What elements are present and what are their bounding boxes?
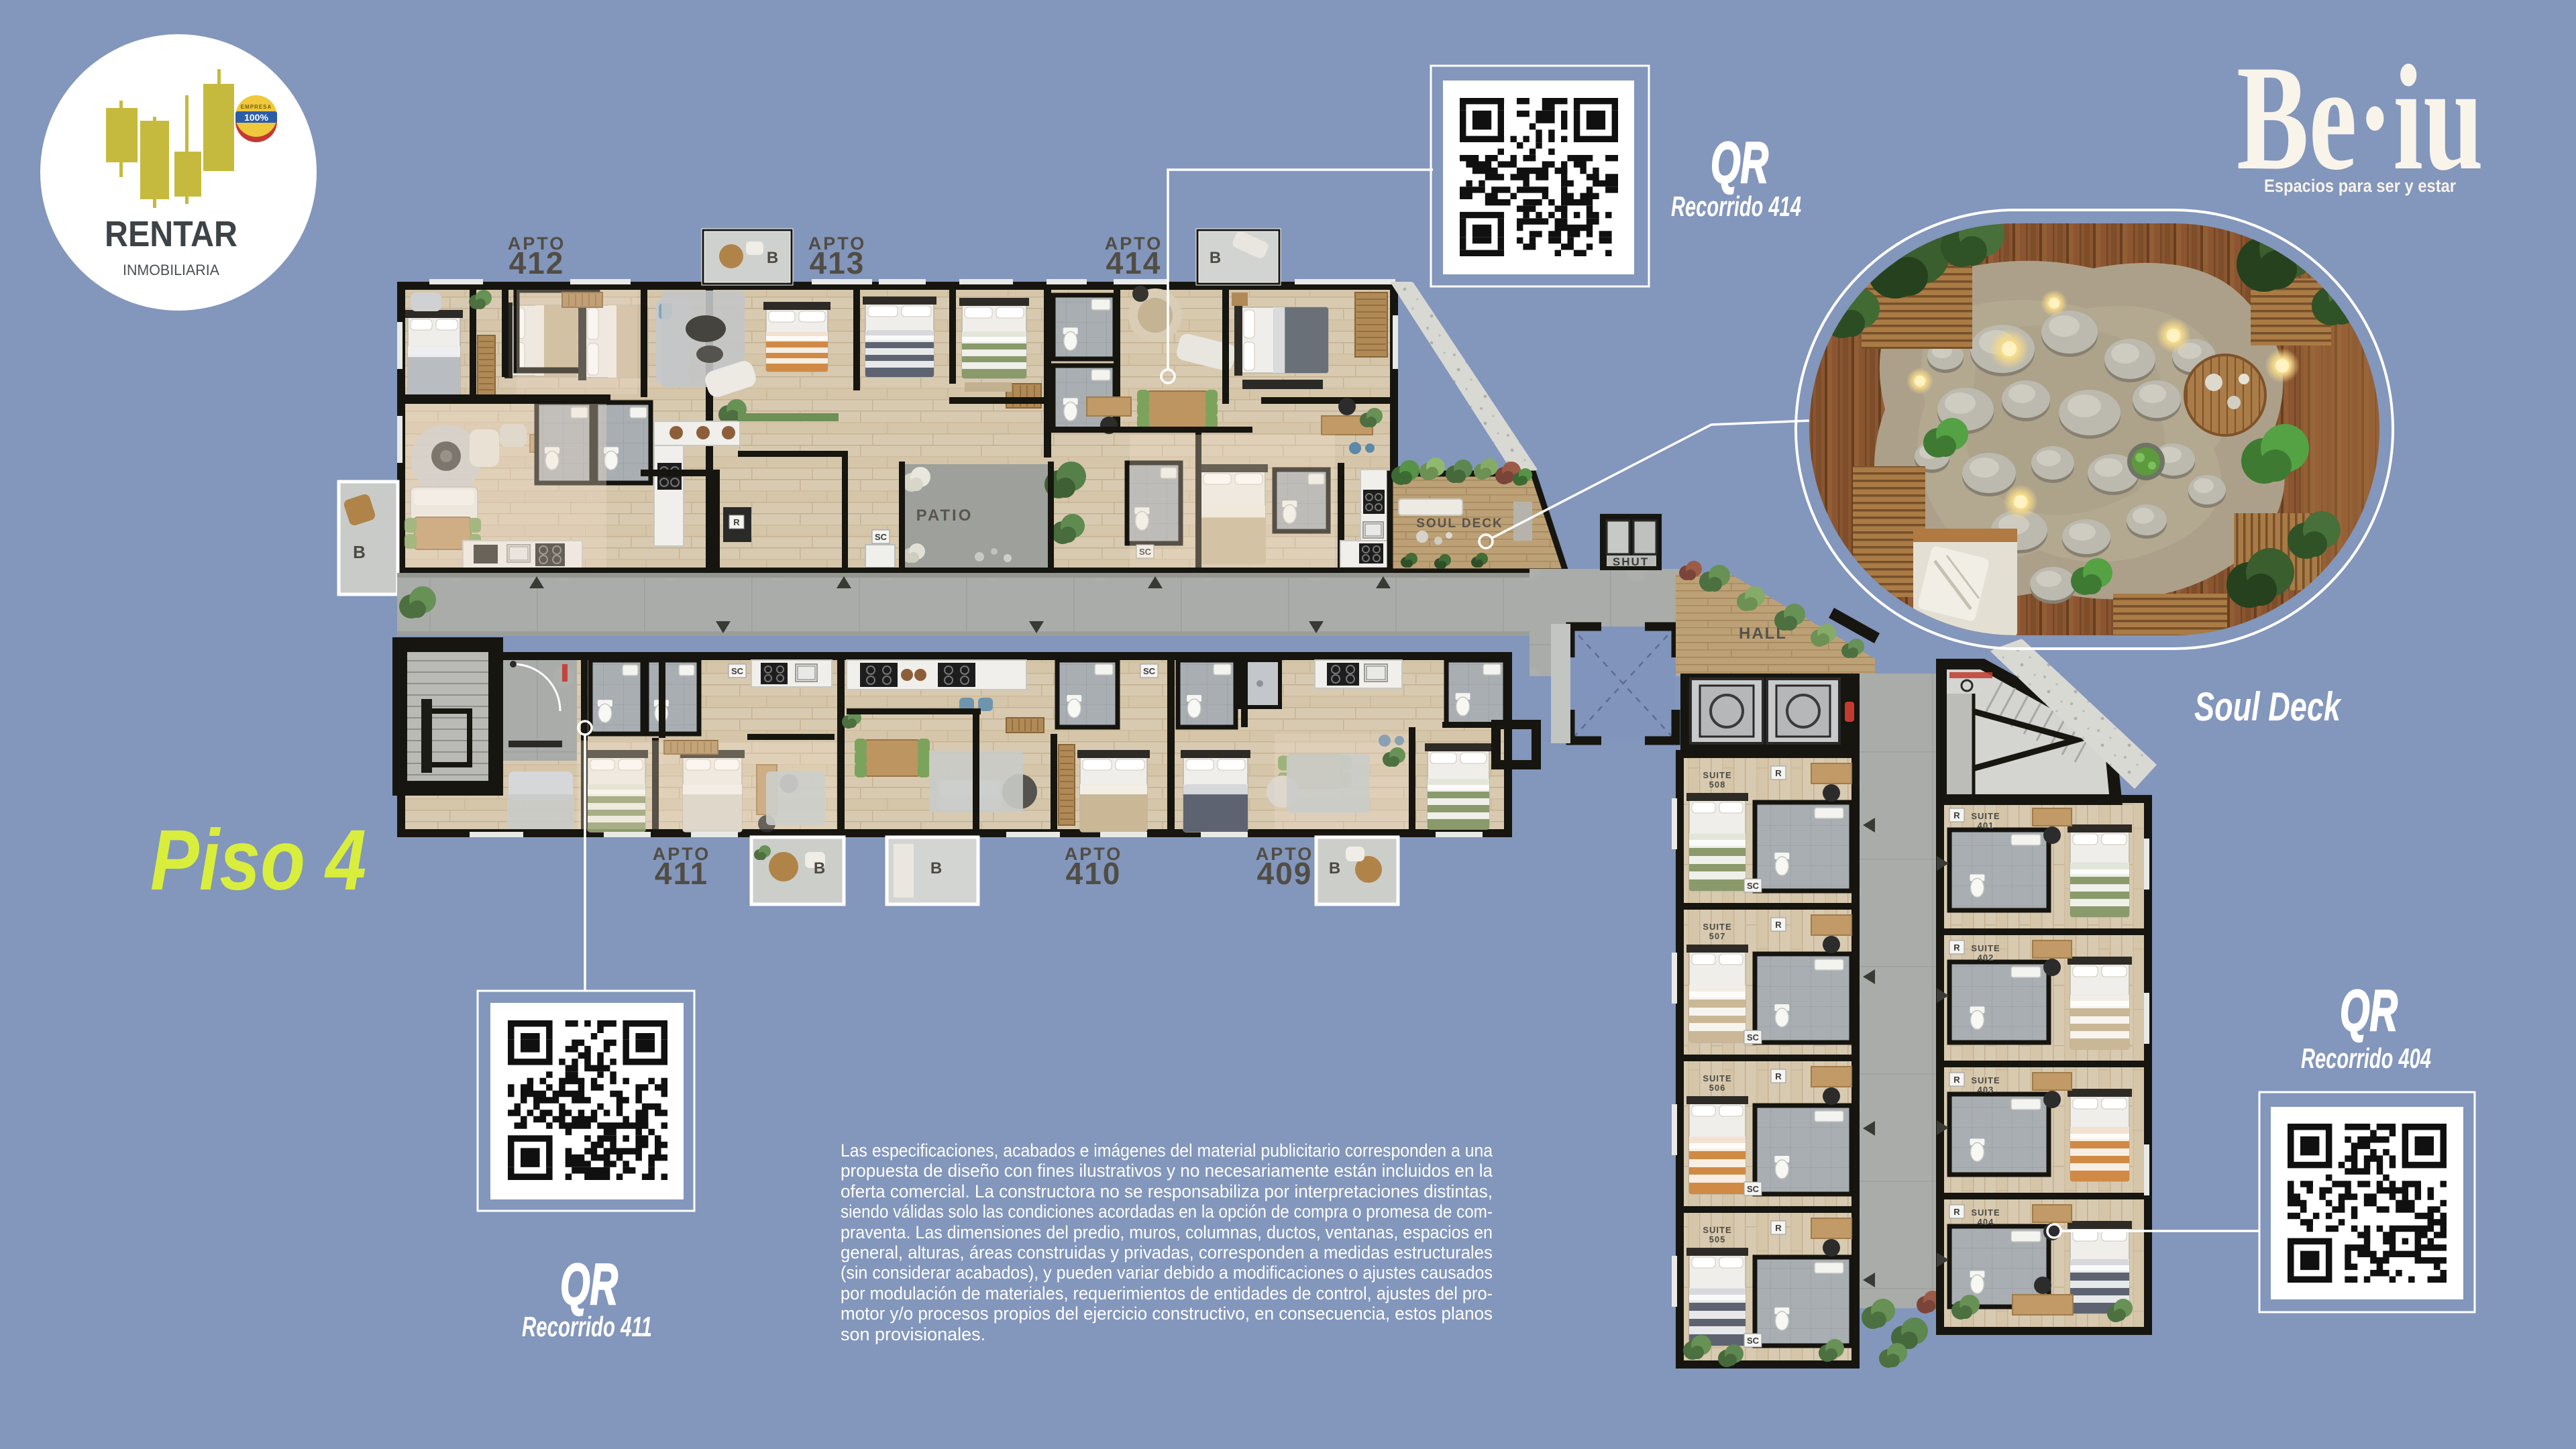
svg-text:505: 505 [1709, 1234, 1726, 1244]
svg-text:507: 507 [1709, 931, 1726, 941]
svg-text:SUITE: SUITE [1703, 770, 1731, 780]
svg-text:SUITE: SUITE [1971, 1075, 2000, 1085]
svg-text:R: R [733, 517, 740, 527]
svg-text:Recorrido 411: Recorrido 411 [522, 1311, 652, 1342]
svg-text:B: B [767, 249, 779, 267]
svg-text:R: R [1953, 1075, 1960, 1085]
svg-text:412: 412 [509, 246, 565, 280]
svg-text:RENTAR: RENTAR [105, 214, 237, 254]
svg-text:SC: SC [731, 666, 744, 676]
svg-text:B: B [353, 542, 366, 562]
svg-text:Espacios para ser y estar: Espacios para ser y estar [2264, 176, 2456, 196]
svg-text:508: 508 [1709, 780, 1726, 790]
svg-text:SUITE: SUITE [1703, 1073, 1731, 1083]
svg-text:QR: QR [560, 1252, 618, 1317]
svg-text:R: R [1775, 1223, 1782, 1233]
svg-text:414: 414 [1106, 246, 1162, 280]
svg-text:Soul Deck: Soul Deck [2194, 684, 2342, 729]
svg-text:SOUL DECK: SOUL DECK [1416, 517, 1503, 531]
svg-text:SC: SC [1747, 1336, 1760, 1346]
svg-text:SC: SC [1747, 1032, 1760, 1042]
svg-text:QR: QR [1711, 131, 1768, 195]
svg-text:SUITE: SUITE [1703, 922, 1731, 932]
svg-text:B: B [1329, 859, 1341, 877]
svg-text:SUITE: SUITE [1971, 1207, 2000, 1218]
svg-text:SC: SC [875, 532, 888, 542]
svg-text:506: 506 [1709, 1083, 1726, 1093]
svg-text:SC: SC [1143, 666, 1156, 676]
svg-text:INMOBILIARIA: INMOBILIARIA [123, 262, 219, 278]
svg-text:QR: QR [2340, 979, 2398, 1043]
svg-text:413: 413 [810, 246, 865, 280]
svg-text:R: R [1775, 768, 1782, 778]
svg-text:R: R [1775, 920, 1782, 930]
svg-text:401: 401 [1978, 820, 1994, 830]
svg-text:R: R [1953, 1207, 1960, 1217]
svg-text:410: 410 [1066, 856, 1122, 891]
svg-text:411: 411 [655, 856, 708, 891]
svg-text:SC: SC [1747, 1184, 1760, 1194]
svg-text:SUITE: SUITE [1971, 943, 2000, 953]
svg-text:SHUT: SHUT [1613, 555, 1649, 568]
svg-text:409: 409 [1257, 856, 1313, 891]
svg-text:SUITE: SUITE [1971, 811, 2000, 821]
svg-text:100%: 100% [244, 112, 268, 123]
svg-text:Recorrido 414: Recorrido 414 [1671, 191, 1801, 222]
svg-text:B: B [814, 859, 826, 877]
svg-text:402: 402 [1978, 953, 1994, 963]
svg-text:PATIO: PATIO [916, 506, 973, 525]
svg-text:Recorrido 404: Recorrido 404 [2301, 1042, 2431, 1074]
svg-text:R: R [1953, 943, 1960, 953]
svg-text:B: B [1210, 249, 1222, 267]
svg-text:Piso 4: Piso 4 [150, 812, 366, 908]
svg-text:SC: SC [1747, 881, 1760, 891]
svg-text:R: R [1953, 810, 1960, 820]
svg-text:EMPRESA: EMPRESA [241, 104, 272, 110]
svg-text:R: R [1775, 1071, 1782, 1081]
svg-text:403: 403 [1978, 1085, 1994, 1095]
svg-text:404: 404 [1978, 1217, 1994, 1227]
svg-text:B: B [930, 859, 943, 877]
svg-text:SUITE: SUITE [1703, 1225, 1731, 1235]
